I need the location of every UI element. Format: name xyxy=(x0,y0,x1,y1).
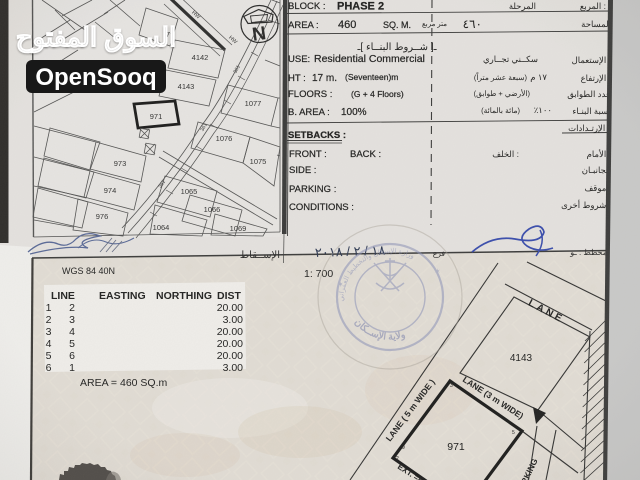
svg-text:السوق المفتوح: السوق المفتوح xyxy=(16,22,177,53)
svg-text:OpenSooq: OpenSooq xyxy=(35,64,156,91)
